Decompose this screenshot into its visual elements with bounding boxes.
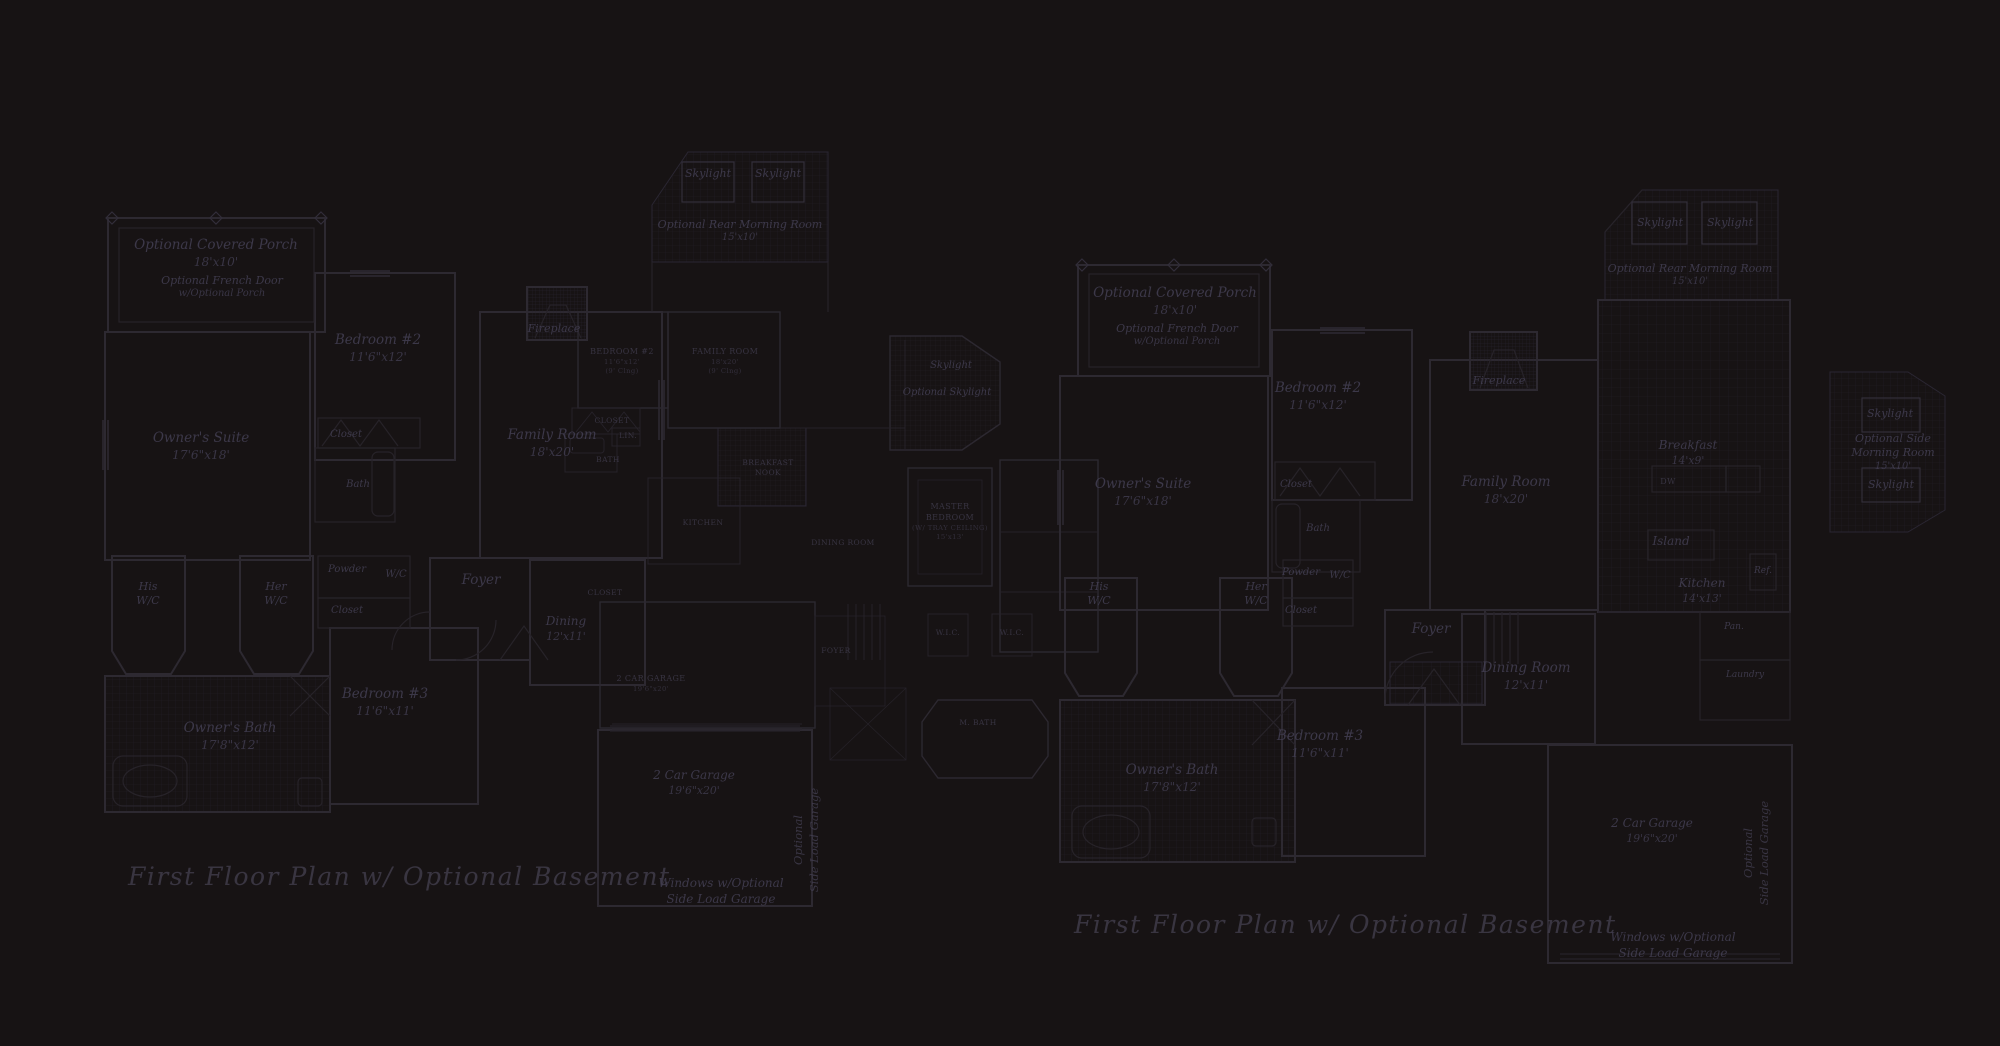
label-c-her-wc: HerW/C bbox=[1244, 580, 1267, 609]
label-c-skylight-left: Skylight bbox=[1637, 216, 1683, 230]
label-a-side-load-garage: OptionalSide Load Garage bbox=[790, 788, 822, 892]
label-c-powder: Powder bbox=[1282, 566, 1320, 579]
label-b-bath: BATH bbox=[596, 455, 620, 465]
caption-first-floor-left: First Floor Plan w/ Optional Basement bbox=[128, 862, 671, 891]
label-b-family-room: FAMILY ROOM18'x20'(9' Clng) bbox=[692, 347, 758, 376]
label-a-dining: Dining12'x11' bbox=[546, 614, 586, 644]
label-a-his-wc: HisW/C bbox=[136, 580, 159, 609]
label-a-family-room: Family Room18'x20' bbox=[507, 427, 596, 460]
label-c-kitchen: Kitchen14'x13' bbox=[1679, 576, 1726, 606]
label-a-owners-suite: Owner's Suite17'6"x18' bbox=[153, 430, 249, 463]
label-a-bedroom2: Bedroom #211'6"x12' bbox=[335, 332, 421, 365]
label-c-bedroom2-bath: Bath bbox=[1306, 522, 1330, 535]
label-b-master-closet: CLOSET bbox=[588, 588, 623, 598]
label-a-her-wc: HerW/C bbox=[264, 580, 287, 609]
label-c-skylight-right: Skylight bbox=[1707, 216, 1753, 230]
label-c-french-door: Optional French Doorw/Optional Porch bbox=[1116, 322, 1238, 349]
label-c-bedroom2-closet: Closet bbox=[1280, 478, 1312, 491]
label-a-garage: 2 Car Garage19'6"x20' bbox=[653, 768, 735, 798]
label-b-foyer: FOYER bbox=[821, 646, 850, 656]
label-c-wc: W/C bbox=[1329, 569, 1350, 582]
label-c-windows-note: Windows w/OptionalSide Load Garage bbox=[1610, 930, 1735, 961]
label-b-linen: LIN. bbox=[619, 431, 637, 441]
label-b-skylight: Skylight bbox=[930, 359, 972, 372]
label-a-hall-closet: Closet bbox=[331, 604, 363, 617]
label-c-breakfast: Breakfast14'x9' bbox=[1659, 438, 1718, 468]
label-c-bedroom3: Bedroom #311'6"x11' bbox=[1277, 728, 1363, 761]
label-a-windows-note: Windows w/OptionalSide Load Garage bbox=[658, 876, 783, 907]
label-a-french-door: Optional French Doorw/Optional Porch bbox=[161, 274, 283, 301]
label-c-fireplace: Fireplace bbox=[1473, 374, 1526, 388]
label-a-foyer: Foyer bbox=[462, 572, 501, 590]
label-c-garage: 2 Car Garage19'6"x20' bbox=[1611, 816, 1693, 846]
label-c-pantry: Pan. bbox=[1724, 622, 1744, 634]
label-c-his-wc: HisW/C bbox=[1087, 580, 1110, 609]
label-b-wic-left: W.I.C. bbox=[936, 628, 960, 638]
label-c-morning-room: Optional Rear Morning Room15'x10' bbox=[1608, 262, 1773, 289]
caption-first-floor-right: First Floor Plan w/ Optional Basement bbox=[1074, 910, 1617, 939]
label-c-hall-closet: Closet bbox=[1285, 604, 1317, 617]
label-b-master-bedroom: MASTERBEDROOM (W/ TRAY CEILING)15'x13' bbox=[912, 502, 988, 542]
label-a-covered-porch: Optional Covered Porch18'x10' bbox=[134, 237, 298, 270]
label-b-dining-room: DINING ROOM bbox=[811, 538, 874, 548]
label-a-bedroom3: Bedroom #311'6"x11' bbox=[342, 686, 428, 719]
label-a-morning-room: Optional Rear Morning Room15'x10' bbox=[658, 218, 823, 245]
label-b-bedroom: BEDROOM #211'6"x12'(9' Clng) bbox=[590, 347, 654, 376]
label-c-laundry: Laundry bbox=[1726, 670, 1764, 682]
plan-b-interior bbox=[565, 340, 1098, 760]
tile-floors bbox=[105, 152, 1945, 862]
label-b-breakfast-nook: BREAKFASTNOOK bbox=[742, 458, 793, 478]
label-c-covered-porch: Optional Covered Porch18'x10' bbox=[1093, 285, 1257, 318]
label-b-closet: CLOSET bbox=[595, 416, 630, 426]
label-b-garage: 2 CAR GARAGE19'6"x20' bbox=[616, 674, 685, 694]
label-c-dw: DW bbox=[1660, 477, 1675, 488]
label-c-family-room: Family Room18'x20' bbox=[1461, 474, 1550, 507]
label-a-skylight-right: Skylight bbox=[755, 167, 801, 181]
floor-plan-sheet: First Floor Plan w/ Optional Basement Fi… bbox=[0, 0, 2000, 1046]
label-c-side-load-garage: OptionalSide Load Garage bbox=[1740, 801, 1772, 905]
label-b-master-bath: M. BATH bbox=[959, 718, 996, 728]
label-c-dining-room: Dining Room12'x11' bbox=[1481, 660, 1570, 693]
label-c-island: Island bbox=[1652, 534, 1689, 550]
label-b-kitchen: KITCHEN bbox=[683, 518, 724, 528]
label-a-wc: W/C bbox=[385, 568, 406, 581]
label-c-owners-bath: Owner's Bath17'8"x12' bbox=[1126, 762, 1219, 795]
label-c-side-morning-skylight-top: Skylight bbox=[1867, 407, 1913, 421]
label-a-owners-bath: Owner's Bath17'8"x12' bbox=[184, 720, 277, 753]
label-c-bedroom2: Bedroom #211'6"x12' bbox=[1275, 380, 1361, 413]
label-a-bedroom2-bath: Bath bbox=[346, 478, 370, 491]
label-a-bedroom2-closet: Closet bbox=[330, 428, 362, 441]
label-a-powder: Powder bbox=[328, 563, 366, 576]
label-c-owners-suite: Owner's Suite17'6"x18' bbox=[1095, 476, 1191, 509]
label-c-ref: Ref. bbox=[1754, 566, 1772, 578]
label-a-skylight-left: Skylight bbox=[685, 167, 731, 181]
label-c-foyer: Foyer bbox=[1412, 621, 1451, 639]
label-b-wic-right: W.I.C. bbox=[1000, 628, 1024, 638]
label-c-side-morning-skylight-bottom: Skylight bbox=[1868, 478, 1914, 492]
label-a-fireplace: Fireplace bbox=[528, 322, 581, 336]
label-b-optional-skylight: Optional Skylight bbox=[903, 386, 991, 399]
label-c-side-morning-room: Optional SideMorning Room15'x10' bbox=[1851, 432, 1934, 473]
